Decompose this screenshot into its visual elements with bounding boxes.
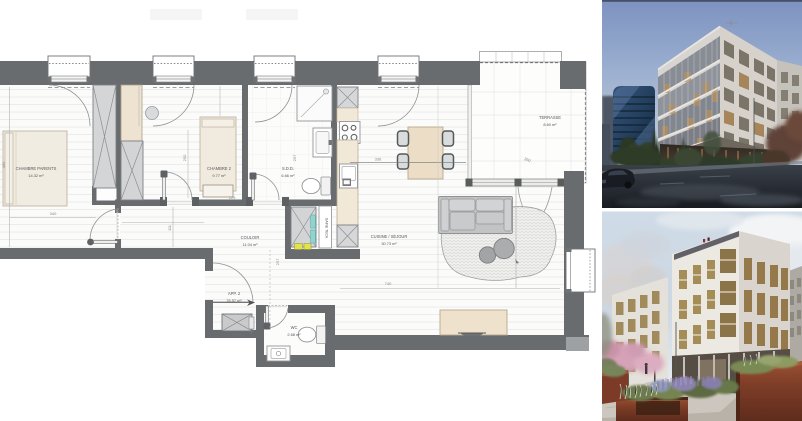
svg-text:229: 229 xyxy=(229,195,236,200)
svg-text:257: 257 xyxy=(275,258,280,265)
svg-text:APP. 2: APP. 2 xyxy=(228,291,241,296)
svg-text:340: 340 xyxy=(50,211,57,216)
svg-text:8.60 m²: 8.60 m² xyxy=(543,122,557,127)
svg-text:TERRASSE: TERRASSE xyxy=(539,115,561,120)
svg-text:111: 111 xyxy=(167,224,172,231)
svg-text:CHAMBRE 2: CHAMBRE 2 xyxy=(207,166,232,171)
svg-text:250: 250 xyxy=(182,154,187,161)
svg-text:ELEC: ELEC xyxy=(233,333,240,337)
svg-text:2.68 m²: 2.68 m² xyxy=(287,332,301,337)
svg-text:14.32 m²: 14.32 m² xyxy=(28,173,44,178)
svg-text:6.66 m²: 6.66 m² xyxy=(281,173,295,178)
svg-text:9.77 m²: 9.77 m² xyxy=(212,173,226,178)
svg-text:CUISINE / SÉJOUR: CUISINE / SÉJOUR xyxy=(371,234,408,239)
svg-text:740: 740 xyxy=(385,281,392,286)
svg-text:GAINE TECH.: GAINE TECH. xyxy=(325,218,329,240)
svg-text:11.04 m²: 11.04 m² xyxy=(242,242,258,247)
svg-text:WC: WC xyxy=(291,325,298,330)
svg-text:30.73 m²: 30.73 m² xyxy=(381,241,397,246)
svg-text:CHAMBRE PARENTS: CHAMBRE PARENTS xyxy=(16,166,57,171)
svg-text:S.D.D.: S.D.D. xyxy=(282,166,294,171)
svg-text:336: 336 xyxy=(375,157,382,162)
svg-text:257: 257 xyxy=(292,154,297,161)
svg-text:76.57 m²: 76.57 m² xyxy=(226,298,242,303)
svg-text:400: 400 xyxy=(1,161,6,168)
svg-text:COULOIR: COULOIR xyxy=(241,235,260,240)
